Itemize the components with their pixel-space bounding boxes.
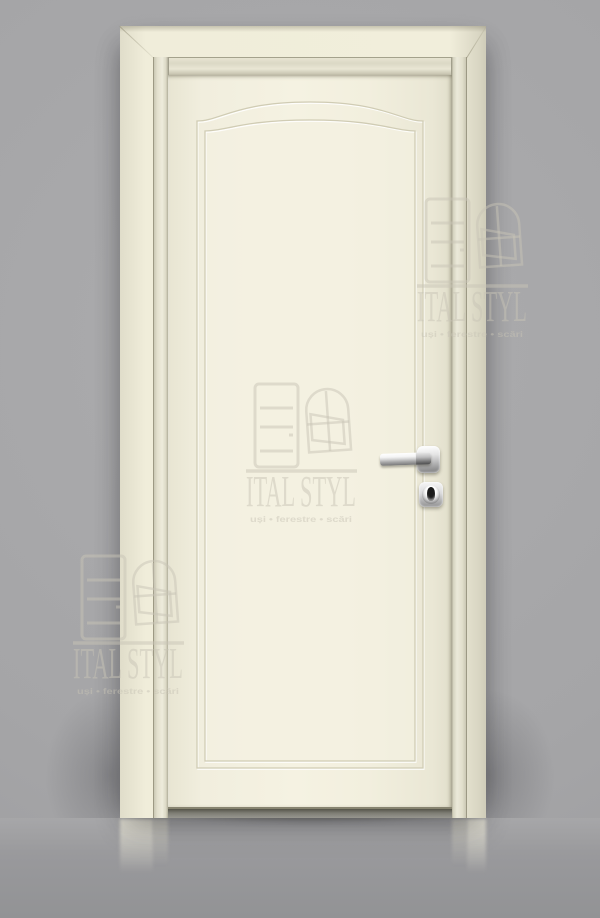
left-jamb: [153, 57, 169, 818]
head-jamb: [153, 57, 467, 76]
reflection-casing-left: [120, 819, 153, 873]
reflection-casing-right: [467, 819, 486, 873]
door-assembly: [120, 26, 486, 818]
lever-handle: [380, 452, 431, 466]
door-icon: [82, 556, 125, 639]
keyhole: [427, 487, 435, 501]
under-door-shadow: [168, 809, 452, 818]
door-leaf: [168, 75, 452, 809]
arched-panel-moulding: [168, 75, 452, 807]
reflection-jamb-right: [452, 819, 467, 865]
product-photo-scene: ITAL STYL uși • ferestre • scări ITAL ST…: [0, 0, 600, 918]
reflection-jamb-left: [153, 819, 168, 865]
right-jamb: [451, 57, 467, 818]
key-escutcheon: [419, 482, 443, 507]
inner-panel: [205, 120, 415, 761]
floor: [0, 818, 600, 918]
